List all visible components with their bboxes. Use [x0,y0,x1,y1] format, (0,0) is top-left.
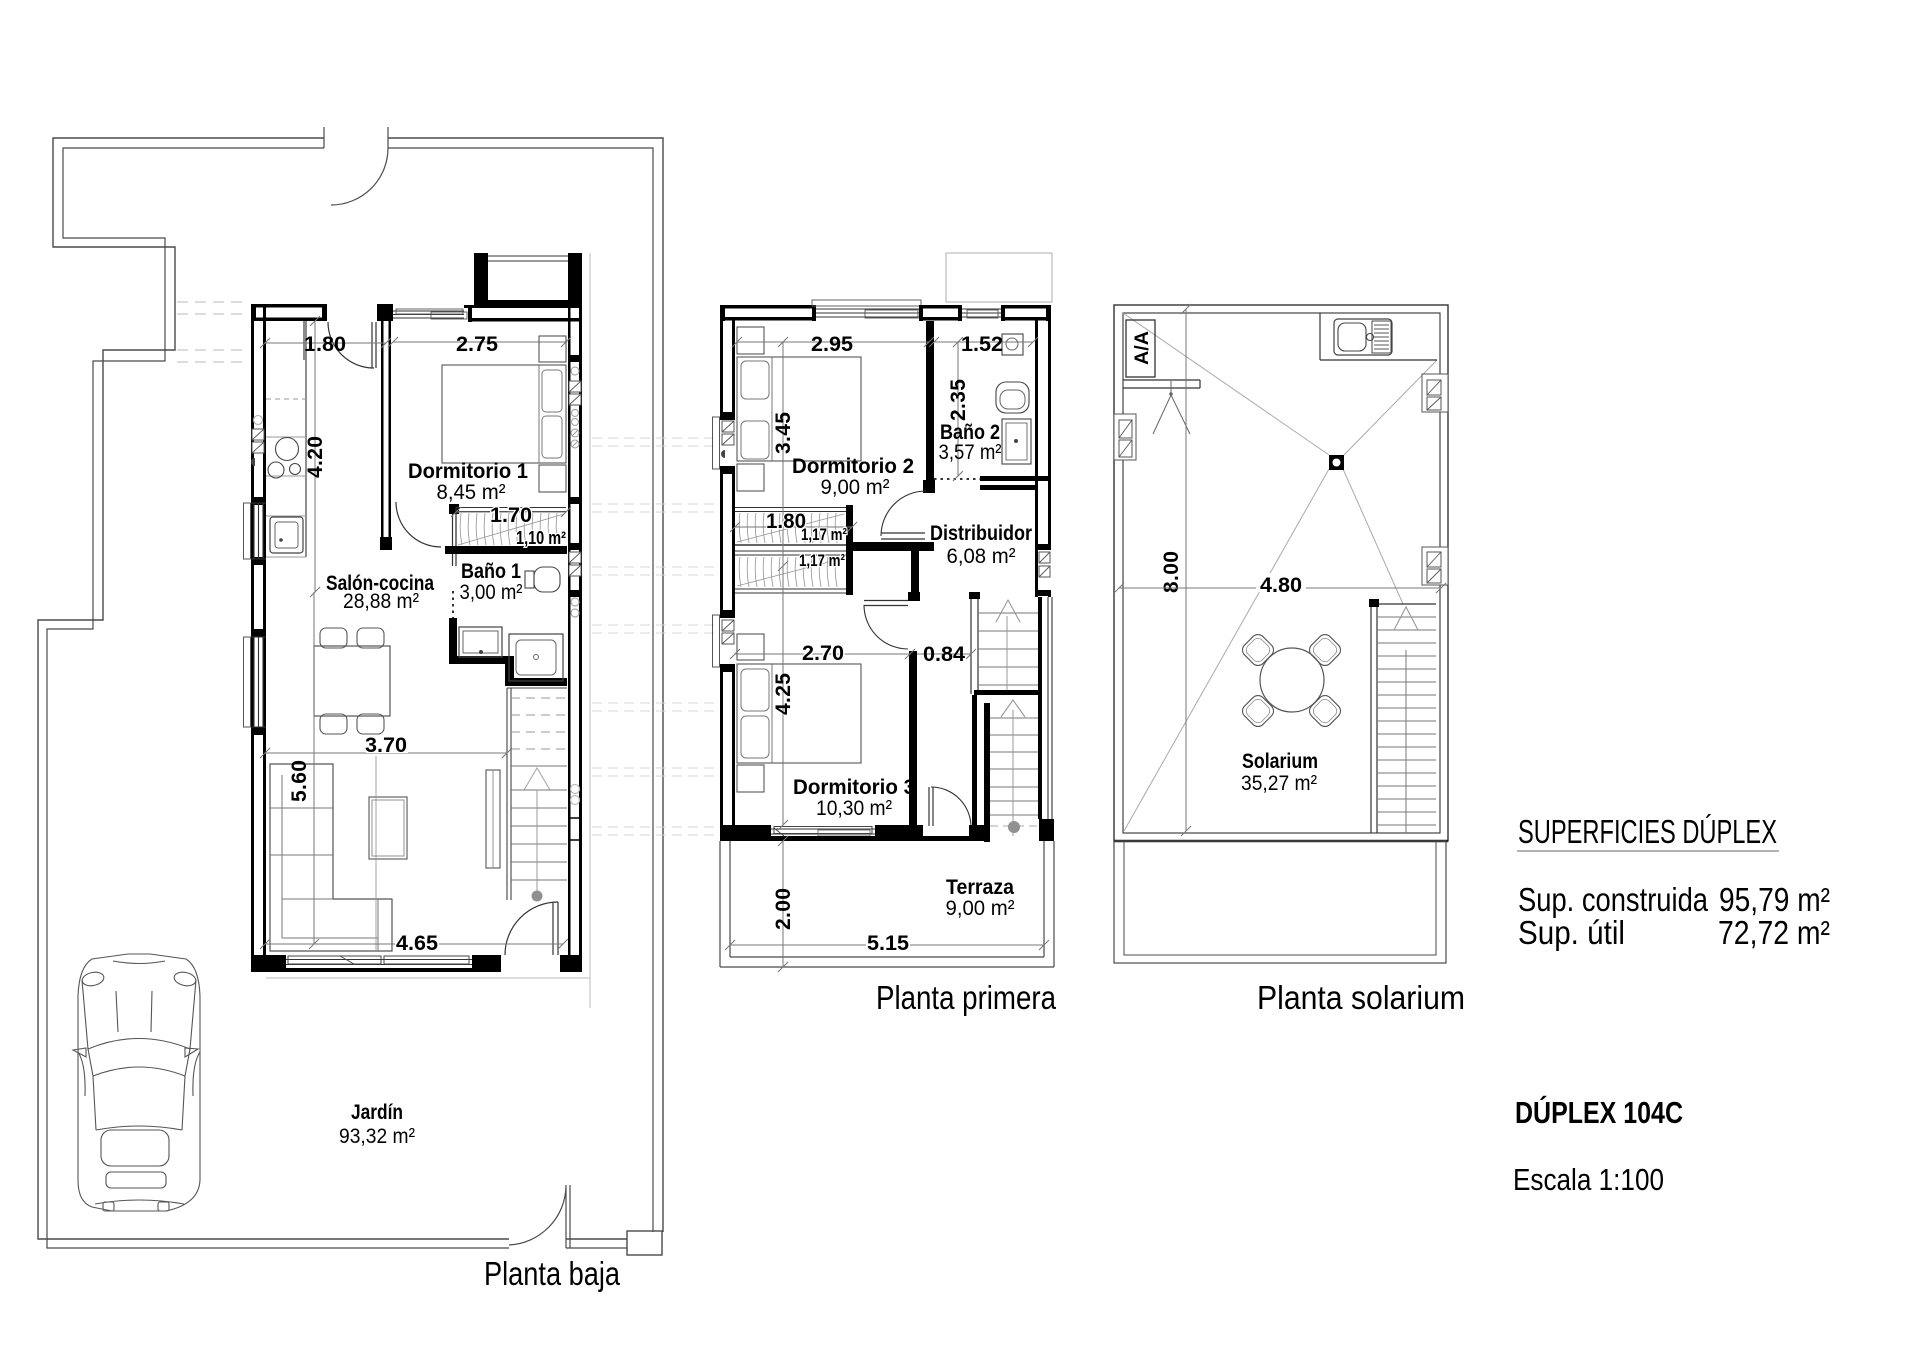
svg-text:0.84: 0.84 [923,643,965,666]
svg-text:3,00 m²: 3,00 m² [460,581,523,604]
svg-text:Planta primera: Planta primera [876,979,1057,1016]
svg-text:9,00 m²: 9,00 m² [946,897,1015,920]
svg-text:Jardín: Jardín [351,1101,403,1124]
svg-text:4.25: 4.25 [772,673,795,715]
svg-text:6,08 m²: 6,08 m² [947,545,1016,568]
svg-text:35,27 m²: 35,27 m² [1241,772,1317,795]
svg-text:Distribuidor: Distribuidor [930,522,1032,545]
svg-text:1,17 m²: 1,17 m² [799,551,845,570]
svg-text:Dormitorio 1: Dormitorio 1 [408,460,528,483]
svg-text:8,45 m²: 8,45 m² [437,481,506,504]
svg-text:Terraza: Terraza [946,876,1014,899]
svg-text:1,10 m²: 1,10 m² [516,528,566,548]
svg-text:95,79 m²: 95,79 m² [1719,881,1830,918]
svg-text:2.75: 2.75 [456,333,498,356]
svg-text:1.52: 1.52 [961,333,1003,356]
svg-text:3.45: 3.45 [772,412,795,454]
svg-text:1.80: 1.80 [766,510,806,533]
svg-text:4.80: 4.80 [1260,574,1302,597]
svg-text:5.60: 5.60 [288,760,311,802]
svg-text:5.15: 5.15 [867,932,909,955]
svg-text:Escala 1:100: Escala 1:100 [1513,1162,1664,1197]
svg-text:1.80: 1.80 [304,333,346,356]
svg-text:Sup. construida: Sup. construida [1518,881,1709,918]
svg-text:28,88 m²: 28,88 m² [343,590,419,613]
svg-text:9,00 m²: 9,00 m² [821,476,890,499]
svg-text:72,72 m²: 72,72 m² [1718,914,1830,951]
svg-text:1,17 m²: 1,17 m² [801,525,847,544]
svg-text:DÚPLEX 104C: DÚPLEX 104C [1515,1094,1683,1130]
svg-text:93,32 m²: 93,32 m² [339,1125,415,1148]
svg-text:3.70: 3.70 [365,734,407,757]
svg-text:8.00: 8.00 [1160,551,1183,593]
svg-text:10,30 m²: 10,30 m² [816,797,892,820]
svg-text:SUPERFICIES DÚPLEX: SUPERFICIES DÚPLEX [1518,813,1777,850]
svg-text:2.70: 2.70 [802,642,844,665]
svg-text:4.20: 4.20 [304,436,327,478]
svg-text:Dormitorio 2: Dormitorio 2 [792,455,914,478]
svg-text:3,57 m²: 3,57 m² [939,441,1002,464]
svg-text:A/A: A/A [1132,331,1153,365]
svg-text:2.95: 2.95 [811,333,853,356]
svg-text:2.00: 2.00 [772,888,795,930]
svg-text:Planta baja: Planta baja [484,1255,621,1292]
svg-text:Baño 1: Baño 1 [461,560,521,583]
svg-text:2.35: 2.35 [947,379,970,421]
svg-text:Planta solarium: Planta solarium [1257,979,1465,1016]
svg-text:Solarium: Solarium [1242,750,1318,773]
svg-text:Dormitorio 3: Dormitorio 3 [793,776,915,799]
svg-text:Sup. útil: Sup. útil [1518,914,1625,951]
svg-text:1.70: 1.70 [490,504,532,527]
svg-text:4.65: 4.65 [396,932,438,955]
